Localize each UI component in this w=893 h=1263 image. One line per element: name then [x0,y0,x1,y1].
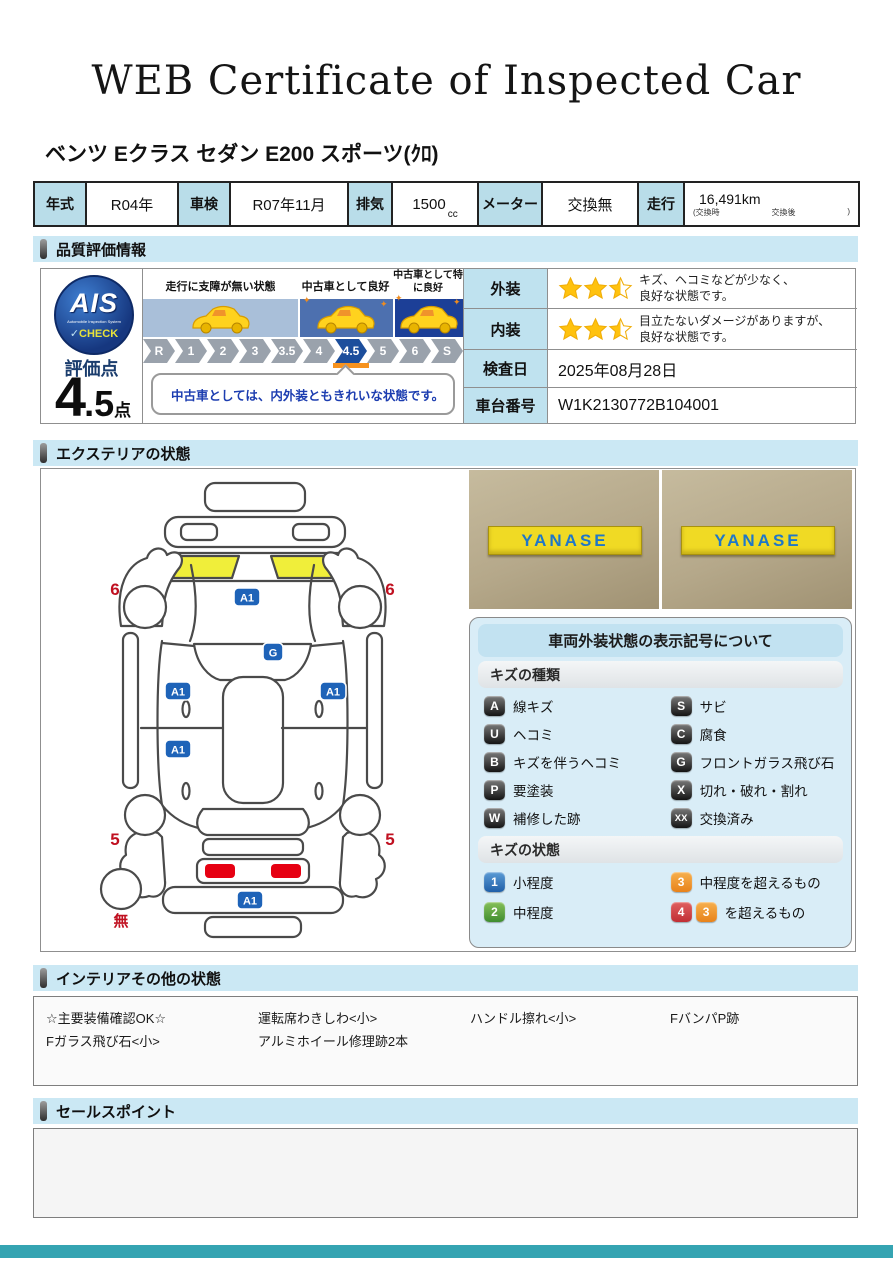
car-icon [189,301,253,335]
displacement-number: 1500 [412,196,445,213]
star-icon [583,317,608,342]
svg-text:A1: A1 [171,687,185,699]
vehicle-name: ベンツ Eクラス セダン E200 スポーツ(ｸﾛ) [45,138,439,168]
interior-note-item: ハンドル擦れ<小> [470,1008,670,1027]
legend-badge-XX: XX [671,808,692,828]
svg-text:A1: A1 [240,593,254,605]
eval-table: 外装 キズ、ヘコミなどが少なく、 良好な状態です。 内装 目立たないダメージがあ… [463,269,857,423]
mileage-subnote: (交換時 交換後 ) [693,207,850,218]
vehicle-photo-1: YANASE [469,470,659,609]
spec-displacement-label: 排気 [349,183,393,225]
ais-logo-text: AIS [70,290,118,317]
legend-state: 1小程度 [484,867,671,897]
car-icon [397,301,461,335]
scale-segment-3.5: 3.5 [271,339,303,363]
legend-badge-W: W [484,808,505,828]
vehicle-photo-2: YANASE [662,470,852,609]
score-value: 4 .5 点 [45,369,141,425]
grade-comment: 中古車としては、内外装ともきれいな状態です。 [153,385,444,404]
mileage-number: 16,491km [693,191,850,207]
legend-badge-A: A [484,696,505,716]
car-icon [314,301,378,335]
legend-badge-X: X [671,780,692,800]
scale-segment-4: 4 [303,339,335,363]
interior-note-item: Fガラス飛び石<小> [46,1031,258,1050]
exterior-label: 外装 [464,269,548,308]
ais-logo-subtext: Automobile Inspection System [67,319,121,324]
legend-badge-S: S [671,696,692,716]
section-quality: 品質評価情報 [33,236,858,262]
spec-mileage-label: 走行 [639,183,685,225]
interior-note-item: アルミホイール修理跡2本 [258,1031,470,1050]
sparkle-icon: ✦ [303,295,311,306]
yanase-sign: YANASE [488,526,642,555]
interior-note-item: ☆主要装備確認OK☆ [46,1008,258,1027]
spec-year-value: R04年 [87,183,179,225]
scale-segment-2: 2 [207,339,239,363]
zone-caption-1: 走行に支障が無い状態 [143,278,298,294]
interior-note-item: 運転席わきしわ<小> [258,1008,470,1027]
legend-badge-1: 1 [484,872,505,892]
scale-segment-1: 1 [175,339,207,363]
legend-badge-2: 2 [484,902,505,922]
spec-mileage-value: 16,491km (交換時 交換後 ) [685,183,858,225]
star-icon [558,276,583,301]
interior-label: 内装 [464,309,548,350]
grade-comment-box: 中古車としては、内外装ともきれいな状態です。 [151,373,455,415]
zone-caption-3: 中古車として特に良好 [393,270,463,295]
spec-shaken-value: R07年11月 [231,183,349,225]
half-star-icon [608,276,633,301]
legend-kind-XX: XX交換済み [671,804,845,832]
eval-row-date: 検査日 2025年08月28日 [464,350,857,388]
interior-star-rating [558,317,633,342]
legend-states-header: キズの状態 [478,836,843,863]
section-accent-bar [40,443,47,463]
eval-row-vin: 車台番号 W1K2130772B104001 [464,388,857,423]
active-grade-underline [333,363,369,368]
legend-states-grid: 1小程度3中程度を超えるもの2中程度43を超えるもの [484,867,845,927]
legend-kinds-header: キズの種類 [478,661,843,688]
svg-text:G: G [269,648,278,660]
ais-logo-column: AIS Automobile Inspection System ✓CHECK … [41,269,143,423]
section-exterior-title: エクステリアの状態 [56,443,191,464]
svg-text:A1: A1 [326,687,340,699]
svg-text:A1: A1 [243,896,257,908]
wheel-count-6: 6 [385,580,394,599]
exterior-box: A1GA1A1A1A16655無 YANASE YANASE 車両外装状態の表示… [40,468,856,952]
legend-badge-U: U [484,724,505,744]
vin-label: 車台番号 [464,388,548,423]
legend-title: 車両外装状態の表示記号について [478,624,843,657]
legend-badge-G: G [671,752,692,772]
legend-state: 2中程度 [484,897,671,927]
exterior-desc: キズ、ヘコミなどが少なく、 良好な状態です。 [639,272,795,304]
eval-row-exterior: 外装 キズ、ヘコミなどが少なく、 良好な状態です。 [464,269,857,309]
half-star-icon [608,317,633,342]
damage-legend-panel: 車両外装状態の表示記号について キズの種類 A線キズSサビUヘコミC腐食Bキズを… [469,617,852,948]
scale-segment-6: 6 [399,339,431,363]
interior-note-item: FバンパP跡 [670,1008,845,1027]
footer-bar [0,1245,893,1258]
page-title: WEB Certificate of Inspected Car [0,58,893,104]
sparkle-icon: ✦ [395,293,403,304]
spec-year-label: 年式 [35,183,87,225]
vin-value: W1K2130772B104001 [548,388,857,423]
legend-state: 43を超えるもの [671,897,845,927]
section-interior-title: インテリアその他の状態 [56,968,221,989]
exterior-star-rating [558,276,633,301]
section-accent-bar [40,1101,47,1121]
section-sales: セールスポイント [33,1098,858,1124]
sales-points-box [33,1128,858,1218]
ais-check-label: ✓CHECK [70,327,118,340]
svg-text:A1: A1 [171,745,185,757]
section-sales-title: セールスポイント [56,1101,176,1122]
grade-graphic: 走行に支障が無い状態 中古車として良好 中古車として特に良好 [143,269,463,423]
legend-badge-C: C [671,724,692,744]
scale-segment-5: 5 [367,339,399,363]
inspection-date-value: 2025年08月28日 [548,350,857,387]
legend-kind-G: Gフロントガラス飛び石 [671,748,845,776]
wheel-count-5: 5 [385,830,394,849]
legend-kind-U: Uヘコミ [484,720,671,748]
spec-shaken-label: 車検 [179,183,231,225]
legend-badge-4: 4 [671,902,692,922]
car-damage-diagram: A1GA1A1A1A16655無 [45,471,460,945]
inspection-date-label: 検査日 [464,350,548,387]
yanase-sign: YANASE [681,526,835,555]
legend-kind-C: C腐食 [671,720,845,748]
section-accent-bar [40,239,47,259]
eval-row-interior: 内装 目立たないダメージがありますが、 良好な状態です。 [464,309,857,351]
legend-kind-P: P要塗装 [484,776,671,804]
wheel-count-無: 無 [113,912,128,930]
interior-notes-box: ☆主要装備確認OK☆運転席わきしわ<小>ハンドル擦れ<小>FバンパP跡Fガラス飛… [33,996,858,1086]
legend-kind-B: Bキズを伴うヘコミ [484,748,671,776]
displacement-unit: cc [448,209,458,225]
section-interior: インテリアその他の状態 [33,965,858,991]
certificate-page: WEB Certificate of Inspected Car ベンツ Eクラ… [0,0,893,1263]
spec-meter-value: 交換無 [543,183,639,225]
legend-kind-S: Sサビ [671,692,845,720]
legend-badge-B: B [484,752,505,772]
scale-segment-4.5: 4.5 [335,339,367,363]
interior-notes-grid: ☆主要装備確認OK☆運転席わきしわ<小>ハンドル擦れ<小>FバンパP跡Fガラス飛… [34,997,857,1061]
legend-kind-W: W補修した跡 [484,804,671,832]
section-accent-bar [40,968,47,988]
legend-badge-3: 3 [671,872,692,892]
sparkle-icon: ✦ [453,297,461,308]
scale-segment-3: 3 [239,339,271,363]
interior-desc: 目立たないダメージがありますが、 良好な状態です。 [639,313,830,345]
section-exterior: エクステリアの状態 [33,440,858,466]
zone-caption-2: 中古車として良好 [298,278,393,294]
legend-state: 3中程度を超えるもの [671,867,845,897]
legend-badge-P: P [484,780,505,800]
legend-kinds-grid: A線キズSサビUヘコミC腐食Bキズを伴うヘコミGフロントガラス飛び石P要塗装X切… [484,692,845,832]
legend-kind-X: X切れ・破れ・割れ [671,776,845,804]
section-quality-title: 品質評価情報 [56,239,146,260]
spec-displacement-value: 1500 cc [393,183,479,225]
star-icon [583,276,608,301]
quality-eval-box: AIS Automobile Inspection System ✓CHECK … [40,268,856,424]
scale-segment-R: R [143,339,175,363]
ais-logo: AIS Automobile Inspection System ✓CHECK [54,275,134,355]
spec-table: 年式 R04年 車検 R07年11月 排気 1500 cc メーター 交換無 走… [33,181,860,227]
star-icon [558,317,583,342]
grade-scale: R1233.544.556S [143,339,463,363]
wheel-count-6: 6 [110,580,119,599]
legend-badge-3: 3 [696,902,717,922]
scale-segment-S: S [431,339,463,363]
spec-meter-label: メーター [479,183,543,225]
wheel-count-5: 5 [110,830,119,849]
sparkle-icon: ✦ [380,299,388,310]
legend-kind-A: A線キズ [484,692,671,720]
